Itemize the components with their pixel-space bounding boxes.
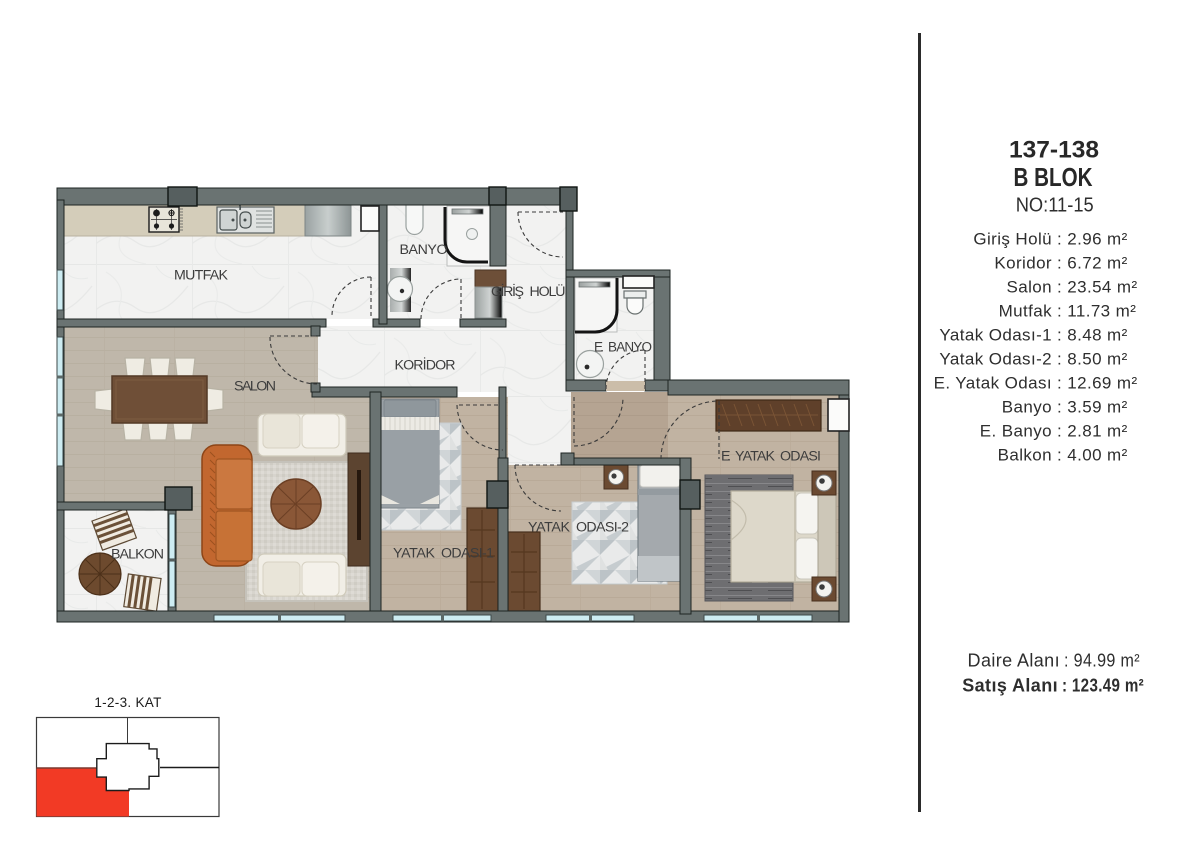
svg-text:NO:11-15: NO:11-15 bbox=[1016, 194, 1094, 216]
svg-text:BANYO: BANYO bbox=[400, 242, 448, 258]
svg-text:: 11.73 m²: : 11.73 m² bbox=[1057, 302, 1136, 321]
svg-text:ODASI-2: ODASI-2 bbox=[576, 520, 629, 536]
svg-text:: 94.99 m²: : 94.99 m² bbox=[1064, 651, 1140, 671]
svg-text:Banyo: Banyo bbox=[1002, 398, 1052, 417]
svg-text:Salon: Salon bbox=[1007, 278, 1052, 297]
svg-text:: 2.96 m²: : 2.96 m² bbox=[1057, 230, 1128, 249]
svg-text:E.: E. bbox=[721, 449, 731, 465]
svg-text:HOLÜ: HOLÜ bbox=[530, 282, 566, 300]
svg-text:: 8.50 m²: : 8.50 m² bbox=[1057, 350, 1128, 369]
svg-text:BALKON: BALKON bbox=[111, 547, 164, 563]
svg-text:YATAK: YATAK bbox=[528, 520, 571, 536]
svg-text:Yatak Odası-1: Yatak Odası-1 bbox=[939, 326, 1052, 345]
svg-text:Giriş Holü: Giriş Holü bbox=[973, 230, 1052, 249]
svg-text:E. Yatak Odası: E. Yatak Odası bbox=[934, 374, 1052, 393]
svg-text:: 3.59 m²: : 3.59 m² bbox=[1057, 398, 1128, 417]
svg-text:E.: E. bbox=[594, 340, 604, 355]
svg-text:E. Banyo: E. Banyo bbox=[980, 422, 1052, 441]
svg-text:Satış Alanı: Satış Alanı bbox=[962, 676, 1058, 696]
svg-text:Balkon: Balkon bbox=[998, 446, 1052, 465]
svg-text:: 6.72 m²: : 6.72 m² bbox=[1057, 254, 1128, 273]
svg-text:Koridor: Koridor bbox=[994, 254, 1052, 273]
svg-text:: 23.54 m²: : 23.54 m² bbox=[1057, 278, 1138, 297]
svg-text:ODASI-1: ODASI-1 bbox=[441, 546, 494, 562]
svg-text:KORİDOR: KORİDOR bbox=[395, 356, 456, 374]
svg-text:MUTFAK: MUTFAK bbox=[174, 268, 229, 284]
svg-text:: 12.69 m²: : 12.69 m² bbox=[1057, 374, 1138, 393]
svg-text:SALON: SALON bbox=[234, 379, 276, 395]
svg-text:GİRİŞ: GİRİŞ bbox=[491, 282, 524, 300]
svg-text:: 123.49 m²: : 123.49 m² bbox=[1062, 676, 1144, 696]
svg-text:Mutfak: Mutfak bbox=[999, 302, 1053, 321]
svg-text:YATAK: YATAK bbox=[393, 546, 436, 562]
svg-text:BANYO: BANYO bbox=[608, 340, 652, 355]
svg-text:: 2.81 m²: : 2.81 m² bbox=[1057, 422, 1128, 441]
svg-text:: 4.00 m²: : 4.00 m² bbox=[1057, 446, 1128, 465]
svg-text:Yatak Odası-2: Yatak Odası-2 bbox=[939, 350, 1052, 369]
svg-text:: 8.48 m²: : 8.48 m² bbox=[1057, 326, 1128, 345]
svg-text:B BLOK: B BLOK bbox=[1014, 164, 1093, 192]
svg-text:137-138: 137-138 bbox=[1009, 137, 1099, 164]
svg-text:1-2-3. KAT: 1-2-3. KAT bbox=[94, 695, 161, 710]
svg-text:Daire Alanı: Daire Alanı bbox=[968, 651, 1060, 671]
svg-text:YATAK: YATAK bbox=[735, 449, 776, 465]
svg-text:ODASI: ODASI bbox=[780, 449, 821, 465]
